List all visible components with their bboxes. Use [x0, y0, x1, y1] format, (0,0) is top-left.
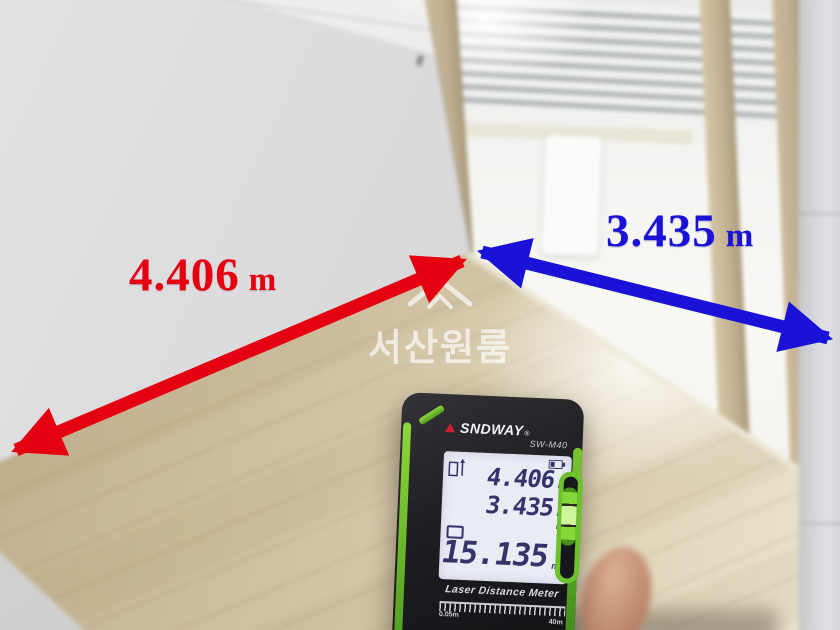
red-measurement-unit: m — [249, 262, 277, 299]
annotated-room-photo: 서산원룸 4.406 m 3.435 m SNDWAY — [0, 0, 840, 630]
screen-reading-1: 4.406 m — [463, 464, 567, 492]
reading-2-value: 3.435 — [483, 493, 555, 520]
trademark-symbol: ® — [524, 431, 529, 438]
house-roof-icon — [407, 276, 473, 310]
brand-logo-icon — [445, 423, 455, 432]
washing-machine — [541, 135, 602, 256]
blue-measurement-label: 3.435 m — [606, 204, 753, 258]
blue-measurement-unit: m — [726, 218, 754, 255]
refrigerator — [798, 0, 840, 630]
refrigerator-seam — [798, 213, 840, 215]
screen-reading-2: 3.435 m — [461, 492, 565, 520]
watermark: 서산원룸 — [345, 276, 535, 371]
main-reading-value: 15.135 — [439, 537, 551, 572]
blue-measurement-value: 3.435 — [606, 204, 717, 258]
device-screen: 4.406 m 3.435 m m 15.135 m² — [439, 451, 572, 584]
window-glare — [444, 0, 586, 77]
brand-name: SNDWAY — [460, 420, 524, 439]
watermark-text: 서산원룸 — [345, 317, 535, 371]
range-max-label: 40m — [549, 619, 563, 627]
bubble-level-vial — [560, 487, 578, 546]
range-min-label: 0.05m — [439, 611, 459, 619]
screen-main-reading: 15.135 m² — [459, 538, 563, 573]
red-measurement-label: 4.406 m — [129, 248, 276, 302]
refrigerator-seam — [798, 522, 840, 524]
laser-distance-meter: SNDWAY ® SW-M40 4.406 m 3.435 m — [392, 392, 585, 630]
red-measurement-value: 4.406 — [129, 248, 240, 302]
device-model: SW-M40 — [529, 439, 567, 451]
reading-1-value: 4.406 — [485, 465, 557, 492]
